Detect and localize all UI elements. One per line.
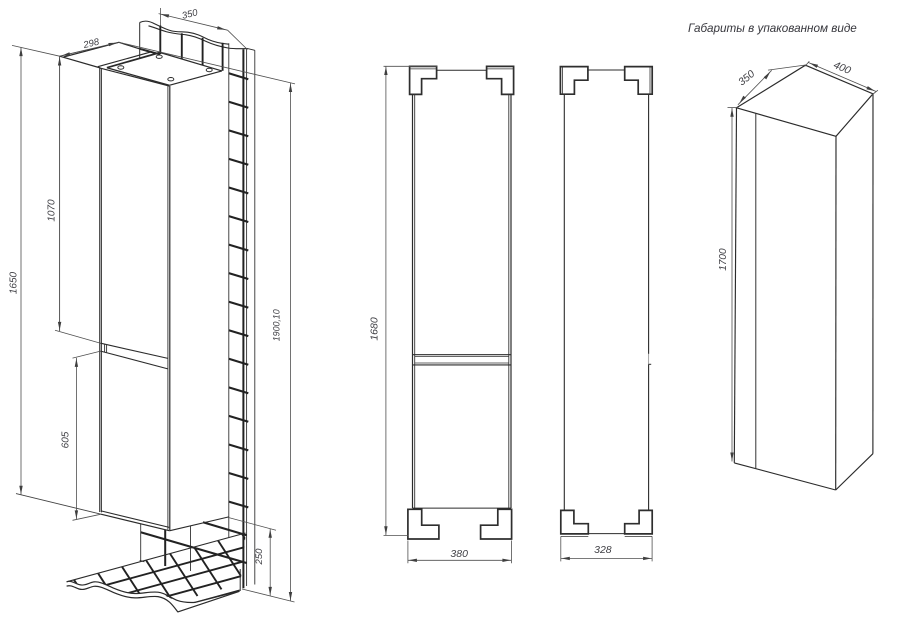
svg-text:1700: 1700 [718,248,729,271]
svg-text:1070: 1070 [46,199,57,222]
svg-text:605: 605 [60,431,71,448]
svg-text:1650: 1650 [8,271,19,294]
svg-text:1680: 1680 [368,317,380,341]
svg-text:380: 380 [450,548,468,560]
svg-text:328: 328 [594,544,612,556]
svg-text:1900,10: 1900,10 [271,309,281,341]
svg-text:250: 250 [254,548,265,566]
svg-text:Габариты в упакованном виде: Габариты в упакованном виде [688,22,857,35]
